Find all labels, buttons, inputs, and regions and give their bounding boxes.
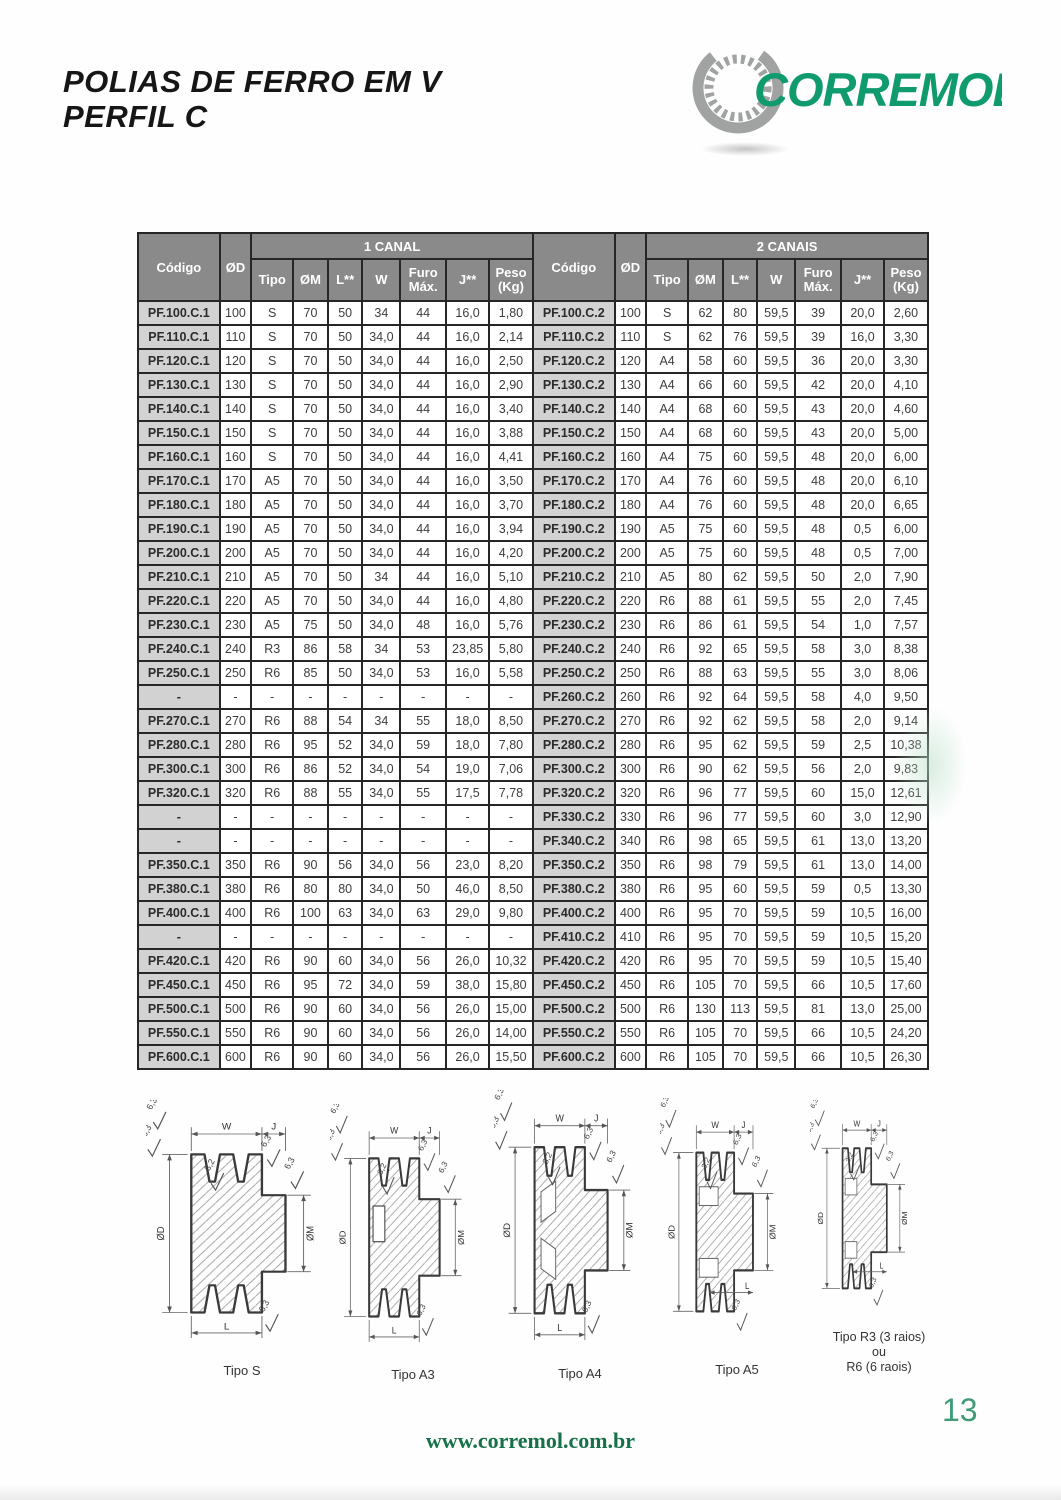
- cell-value: 320: [615, 781, 647, 805]
- catalog-page: POLIAS DE FERRO EM V PERFIL C CORREMOL C…: [0, 0, 1061, 1500]
- cell-value: 330: [615, 805, 647, 829]
- table-row: PF.110.C.1110S705034,04416,02,14PF.110.C…: [138, 325, 928, 349]
- cell-codigo: PF.550.C.2: [533, 1021, 615, 1045]
- cell-value: 80: [688, 565, 723, 589]
- cell-value: 7,06: [489, 757, 533, 781]
- cell-value: 15,20: [884, 925, 928, 949]
- cell-value: 240: [220, 637, 252, 661]
- cell-value: 420: [615, 949, 647, 973]
- cell-value: -: [251, 829, 293, 853]
- cell-codigo: PF.280.C.1: [138, 733, 220, 757]
- cell-value: 44: [400, 397, 446, 421]
- cell-codigo: -: [138, 685, 220, 709]
- cell-value: 90: [688, 757, 723, 781]
- cell-codigo: PF.270.C.1: [138, 709, 220, 733]
- cell-value: A4: [646, 469, 688, 493]
- cell-value: 17,60: [884, 973, 928, 997]
- diagram-tipo-a3: WJØDØML 6,3 6,3 3,2 6,3 6,3 6,3 Tipo A3: [330, 1104, 496, 1382]
- cell-codigo: PF.100.C.2: [533, 301, 615, 325]
- cell-value: 16,0: [446, 493, 489, 517]
- cell-value: 34,0: [362, 1021, 400, 1045]
- cell-value: 110: [615, 325, 647, 349]
- cell-value: 70: [293, 541, 328, 565]
- cell-value: 48: [795, 517, 841, 541]
- cell-value: 190: [615, 517, 647, 541]
- footer-url-link[interactable]: www.corremol.com.br: [0, 1428, 1061, 1454]
- cell-value: 70: [723, 949, 758, 973]
- cell-value: 59,5: [757, 565, 795, 589]
- cell-value: 53: [400, 661, 446, 685]
- cell-value: 350: [220, 853, 252, 877]
- cell-codigo: PF.200.C.1: [138, 541, 220, 565]
- cell-value: 75: [688, 541, 723, 565]
- svg-text:6,3: 6,3: [258, 1133, 273, 1148]
- cell-value: A5: [251, 469, 293, 493]
- diagram-tipo-r: WJØDØML 6,3 6,3 3,2 6,3 6,3 6,3 Tipo R3 …: [810, 1100, 948, 1375]
- diagram-caption-tipo-a3: Tipo A3: [391, 1367, 435, 1382]
- cell-value: 550: [220, 1021, 252, 1045]
- cell-value: 4,60: [884, 397, 928, 421]
- col-header-tipo-1: Tipo: [251, 259, 293, 301]
- cell-value: 3,88: [489, 421, 533, 445]
- cell-value: 26,0: [446, 1021, 489, 1045]
- cell-value: S: [251, 301, 293, 325]
- cell-value: 2,0: [841, 589, 884, 613]
- cell-value: 16,0: [446, 397, 489, 421]
- cell-value: 56: [328, 853, 363, 877]
- cell-value: 200: [615, 541, 647, 565]
- cell-value: 59,5: [757, 541, 795, 565]
- cell-value: 20,0: [841, 445, 884, 469]
- svg-text:6,3: 6,3: [330, 1104, 342, 1115]
- cell-value: 50: [328, 325, 363, 349]
- col-header-peso-1: Peso(Kg): [489, 259, 533, 301]
- cell-value: 34,0: [362, 469, 400, 493]
- cell-value: 60: [723, 421, 758, 445]
- cell-value: 50: [328, 301, 363, 325]
- cell-codigo: PF.120.C.2: [533, 349, 615, 373]
- svg-text:6,3: 6,3: [146, 1123, 154, 1138]
- cell-value: 18,0: [446, 709, 489, 733]
- cell-codigo: PF.420.C.1: [138, 949, 220, 973]
- cell-value: 34,0: [362, 325, 400, 349]
- cell-value: 77: [723, 805, 758, 829]
- cell-codigo: PF.270.C.2: [533, 709, 615, 733]
- cell-value: 44: [400, 517, 446, 541]
- cell-value: 34,0: [362, 613, 400, 637]
- col-header-codigo-2: Código: [533, 233, 615, 301]
- cell-value: 68: [688, 421, 723, 445]
- cell-value: -: [328, 829, 363, 853]
- cell-value: A5: [646, 541, 688, 565]
- cell-value: 4,41: [489, 445, 533, 469]
- cell-value: 95: [688, 877, 723, 901]
- cell-value: -: [446, 805, 489, 829]
- cell-value: 2,0: [841, 709, 884, 733]
- cell-value: 59,5: [757, 661, 795, 685]
- cell-value: 59,5: [757, 1021, 795, 1045]
- page-title-line2: PERFIL C: [63, 99, 442, 134]
- cell-value: A5: [251, 541, 293, 565]
- cell-value: 450: [220, 973, 252, 997]
- cell-value: 76: [723, 325, 758, 349]
- cell-value: 92: [688, 637, 723, 661]
- corremol-logo: CORREMOL: [686, 30, 1002, 152]
- cell-value: 75: [688, 517, 723, 541]
- svg-text:L: L: [224, 1322, 230, 1333]
- cell-codigo: PF.180.C.1: [138, 493, 220, 517]
- cell-value: 14,00: [489, 1021, 533, 1045]
- cell-codigo: PF.230.C.2: [533, 613, 615, 637]
- cell-codigo: PF.330.C.2: [533, 805, 615, 829]
- cell-codigo: PF.250.C.1: [138, 661, 220, 685]
- cell-value: 56: [400, 949, 446, 973]
- cell-value: R6: [251, 853, 293, 877]
- cell-codigo: PF.550.C.1: [138, 1021, 220, 1045]
- cell-value: 410: [615, 925, 647, 949]
- cell-value: 59,5: [757, 877, 795, 901]
- cell-value: 60: [328, 1021, 363, 1045]
- cell-value: 70: [293, 421, 328, 445]
- cell-value: 7,78: [489, 781, 533, 805]
- cell-value: 34: [362, 709, 400, 733]
- cell-value: 26,0: [446, 949, 489, 973]
- cell-value: R6: [646, 613, 688, 637]
- cell-value: 320: [220, 781, 252, 805]
- cell-value: 200: [220, 541, 252, 565]
- cell-value: 53: [400, 637, 446, 661]
- cell-value: A4: [646, 397, 688, 421]
- cell-value: 61: [723, 589, 758, 613]
- table-row: PF.600.C.1600R6906034,05626,015,50PF.600…: [138, 1045, 928, 1069]
- cell-value: R6: [646, 781, 688, 805]
- table-row: PF.130.C.1130S705034,04416,02,90PF.130.C…: [138, 373, 928, 397]
- cell-value: 36: [795, 349, 841, 373]
- table-row: PF.230.C.1230A5755034,04816,05,76PF.230.…: [138, 613, 928, 637]
- cell-value: 86: [293, 757, 328, 781]
- cell-value: 59,5: [757, 469, 795, 493]
- cell-value: 34,0: [362, 445, 400, 469]
- svg-text:J: J: [427, 1125, 431, 1135]
- cell-value: 70: [293, 445, 328, 469]
- cell-codigo: PF.280.C.2: [533, 733, 615, 757]
- cell-value: R6: [646, 877, 688, 901]
- cell-value: 20,0: [841, 493, 884, 517]
- cell-codigo: -: [138, 925, 220, 949]
- svg-text:6,3: 6,3: [810, 1121, 816, 1134]
- cell-value: 44: [400, 565, 446, 589]
- cell-value: 39: [795, 325, 841, 349]
- cell-codigo: PF.240.C.2: [533, 637, 615, 661]
- cell-value: 56: [400, 997, 446, 1021]
- svg-text:ØM: ØM: [305, 1226, 316, 1241]
- cell-value: 100: [220, 301, 252, 325]
- cell-value: 59: [795, 733, 841, 757]
- cell-value: 59: [795, 901, 841, 925]
- cell-value: 59,5: [757, 349, 795, 373]
- col-header-l-2: L**: [723, 259, 758, 301]
- cell-value: 50: [328, 421, 363, 445]
- col-header-codigo-1: Código: [138, 233, 220, 301]
- cell-codigo: PF.240.C.1: [138, 637, 220, 661]
- cell-value: 76: [688, 469, 723, 493]
- cell-value: 6,00: [884, 445, 928, 469]
- cell-value: 95: [688, 925, 723, 949]
- cell-value: 86: [293, 637, 328, 661]
- cell-codigo: PF.110.C.2: [533, 325, 615, 349]
- table-row: PF.450.C.1450R6957234,05938,015,80PF.450…: [138, 973, 928, 997]
- group-header-1-canal: 1 CANAL: [251, 233, 533, 259]
- cell-value: 62: [723, 733, 758, 757]
- cell-value: 52: [328, 757, 363, 781]
- cell-value: 61: [723, 613, 758, 637]
- svg-text:6,3: 6,3: [810, 1100, 820, 1110]
- cell-value: S: [646, 325, 688, 349]
- cell-codigo: PF.210.C.1: [138, 565, 220, 589]
- cell-value: 70: [293, 517, 328, 541]
- cell-value: 50: [328, 517, 363, 541]
- cell-value: 70: [293, 301, 328, 325]
- svg-text:6,3: 6,3: [750, 1153, 762, 1169]
- cell-value: 34,0: [362, 757, 400, 781]
- cell-codigo: PF.320.C.1: [138, 781, 220, 805]
- cell-value: 130: [688, 997, 723, 1021]
- cell-value: 44: [400, 325, 446, 349]
- cell-value: 38,0: [446, 973, 489, 997]
- table-row: PF.170.C.1170A5705034,04416,03,50PF.170.…: [138, 469, 928, 493]
- cell-value: 90: [293, 853, 328, 877]
- col-header-w-2: W: [757, 259, 795, 301]
- table-row: PF.380.C.1380R6808034,05046,08,50PF.380.…: [138, 877, 928, 901]
- cell-value: 100: [615, 301, 647, 325]
- cell-value: 230: [615, 613, 647, 637]
- cell-value: R6: [251, 949, 293, 973]
- cell-value: R6: [251, 661, 293, 685]
- cell-value: R6: [646, 709, 688, 733]
- cell-value: 48: [795, 541, 841, 565]
- diagram-caption-tipo-r: Tipo R3 (3 raios) ou R6 (6 raois): [833, 1330, 926, 1375]
- table-row: PF.550.C.1550R6906034,05626,014,00PF.550…: [138, 1021, 928, 1045]
- cell-codigo: PF.500.C.2: [533, 997, 615, 1021]
- cell-value: 54: [400, 757, 446, 781]
- cell-value: -: [220, 805, 252, 829]
- cell-value: 3,50: [489, 469, 533, 493]
- table-row: PF.120.C.1120S705034,04416,02,50PF.120.C…: [138, 349, 928, 373]
- logo-text: CORREMOL: [754, 63, 1002, 116]
- cell-value: 50: [328, 613, 363, 637]
- svg-text:J: J: [594, 1113, 598, 1123]
- svg-text:6,3: 6,3: [494, 1090, 506, 1102]
- cell-value: 130: [615, 373, 647, 397]
- pulley-drawing-tipo-r: WJØDØML 6,3 6,3 3,2 6,3 6,3 6,3: [810, 1100, 948, 1326]
- cell-value: 10,5: [841, 1045, 884, 1069]
- cell-value: 34,0: [362, 661, 400, 685]
- cell-value: 81: [795, 997, 841, 1021]
- table-row: PF.350.C.1350R6905634,05623,08,20PF.350.…: [138, 853, 928, 877]
- cell-codigo: PF.600.C.2: [533, 1045, 615, 1069]
- cell-value: 56: [400, 1045, 446, 1069]
- cell-value: 6,00: [884, 517, 928, 541]
- cell-value: 76: [688, 493, 723, 517]
- cell-value: 66: [688, 373, 723, 397]
- cell-value: 140: [220, 397, 252, 421]
- cell-value: 96: [688, 781, 723, 805]
- cell-value: 270: [615, 709, 647, 733]
- cell-value: 55: [400, 709, 446, 733]
- cell-value: 2,14: [489, 325, 533, 349]
- table-body: PF.100.C.1100S7050344416,01,80PF.100.C.2…: [138, 301, 928, 1069]
- cell-value: 50: [328, 349, 363, 373]
- svg-text:6,3: 6,3: [437, 1159, 450, 1174]
- cell-value: A5: [251, 565, 293, 589]
- cell-value: 44: [400, 349, 446, 373]
- cell-value: 95: [293, 973, 328, 997]
- cell-value: 20,0: [841, 397, 884, 421]
- svg-text:ØD: ØD: [667, 1225, 676, 1239]
- cell-value: 48: [795, 493, 841, 517]
- cell-value: 50: [400, 877, 446, 901]
- cell-value: 23,85: [446, 637, 489, 661]
- cell-value: 600: [220, 1045, 252, 1069]
- table-row: PF.400.C.1400R61006334,06329,09,80PF.400…: [138, 901, 928, 925]
- cell-value: 85: [293, 661, 328, 685]
- cell-value: 65: [723, 829, 758, 853]
- cell-value: 3,94: [489, 517, 533, 541]
- cell-value: 300: [220, 757, 252, 781]
- cell-value: 75: [293, 613, 328, 637]
- cell-value: 3,30: [884, 349, 928, 373]
- cell-codigo: PF.400.C.2: [533, 901, 615, 925]
- cell-value: 150: [615, 421, 647, 445]
- cell-value: R6: [646, 757, 688, 781]
- cell-value: 62: [723, 757, 758, 781]
- cell-value: 61: [795, 829, 841, 853]
- table-row: PF.210.C.1210A57050344416,05,10PF.210.C.…: [138, 565, 928, 589]
- pulley-drawing-tipo-s: WJØDØML 6,3 6,3 3,2 6,3 6,3 6,3: [146, 1100, 338, 1355]
- svg-text:W: W: [711, 1119, 719, 1130]
- cell-value: -: [293, 829, 328, 853]
- cell-value: 160: [220, 445, 252, 469]
- cell-value: A4: [646, 349, 688, 373]
- pulley-drawing-tipo-a5: WJØDØML 6,3 6,3 3,2 6,3 6,3 6,3: [660, 1098, 814, 1354]
- table-row: PF.160.C.1160S705034,04416,04,41PF.160.C…: [138, 445, 928, 469]
- page-title: POLIAS DE FERRO EM V PERFIL C: [63, 64, 442, 134]
- cell-value: 16,0: [446, 469, 489, 493]
- cell-value: 170: [220, 469, 252, 493]
- cell-value: 59: [400, 973, 446, 997]
- cell-value: 77: [723, 781, 758, 805]
- cell-value: 88: [688, 661, 723, 685]
- col-header-l-1: L**: [328, 259, 363, 301]
- cell-value: S: [251, 373, 293, 397]
- cell-codigo: PF.100.C.1: [138, 301, 220, 325]
- cell-value: A5: [251, 589, 293, 613]
- cell-value: 44: [400, 541, 446, 565]
- cell-value: S: [251, 349, 293, 373]
- table-row: ---------PF.410.C.2410R6957059,55910,515…: [138, 925, 928, 949]
- cell-value: 72: [328, 973, 363, 997]
- cell-value: 15,0: [841, 781, 884, 805]
- cell-value: -: [446, 925, 489, 949]
- cell-value: 60: [328, 949, 363, 973]
- col-header-w-1: W: [362, 259, 400, 301]
- cell-value: S: [251, 421, 293, 445]
- cell-value: 59,5: [757, 613, 795, 637]
- cell-value: 44: [400, 589, 446, 613]
- cell-value: 66: [795, 973, 841, 997]
- cell-value: -: [362, 829, 400, 853]
- cell-value: 5,10: [489, 565, 533, 589]
- cell-value: 250: [220, 661, 252, 685]
- cell-value: 55: [795, 661, 841, 685]
- cell-value: 8,20: [489, 853, 533, 877]
- svg-text:ØD: ØD: [338, 1230, 348, 1245]
- cell-value: 44: [400, 469, 446, 493]
- svg-text:ØD: ØD: [817, 1212, 825, 1225]
- cell-value: 60: [723, 349, 758, 373]
- cell-value: 50: [795, 565, 841, 589]
- cell-value: 54: [328, 709, 363, 733]
- cell-value: 59,5: [757, 925, 795, 949]
- cell-value: R6: [251, 901, 293, 925]
- svg-text:ØM: ØM: [456, 1230, 466, 1245]
- cell-value: 60: [723, 445, 758, 469]
- cell-codigo: PF.200.C.2: [533, 541, 615, 565]
- cell-value: 62: [723, 565, 758, 589]
- cell-value: 42: [795, 373, 841, 397]
- cell-value: 10,5: [841, 925, 884, 949]
- svg-text:6,3: 6,3: [282, 1156, 297, 1171]
- cell-value: -: [328, 925, 363, 949]
- cell-value: 59: [795, 949, 841, 973]
- table-row: PF.270.C.1270R68854345518,08,50PF.270.C.…: [138, 709, 928, 733]
- cell-value: 92: [688, 685, 723, 709]
- cell-value: R6: [251, 781, 293, 805]
- cell-codigo: PF.500.C.1: [138, 997, 220, 1021]
- cell-value: 34,0: [362, 733, 400, 757]
- cell-value: 190: [220, 517, 252, 541]
- svg-text:L: L: [880, 1261, 885, 1271]
- cell-value: 400: [615, 901, 647, 925]
- cell-value: 34,0: [362, 853, 400, 877]
- cell-value: 70: [293, 373, 328, 397]
- cell-value: 60: [723, 877, 758, 901]
- cell-value: 50: [328, 589, 363, 613]
- cell-value: 50: [328, 445, 363, 469]
- cell-value: 34,0: [362, 493, 400, 517]
- cell-value: R6: [646, 589, 688, 613]
- table-row: PF.140.C.1140S705034,04416,03,40PF.140.C…: [138, 397, 928, 421]
- cell-value: 2,0: [841, 565, 884, 589]
- cell-value: 16,0: [446, 541, 489, 565]
- cell-value: 180: [220, 493, 252, 517]
- cell-value: 34,0: [362, 373, 400, 397]
- cell-value: 70: [723, 1021, 758, 1045]
- cell-value: 120: [220, 349, 252, 373]
- cell-value: 63: [723, 661, 758, 685]
- cell-value: 59,5: [757, 997, 795, 1021]
- cell-codigo: PF.410.C.2: [533, 925, 615, 949]
- svg-text:W: W: [853, 1119, 860, 1129]
- cell-codigo: PF.150.C.2: [533, 421, 615, 445]
- cell-value: 44: [400, 493, 446, 517]
- cell-value: 19,0: [446, 757, 489, 781]
- cell-value: R6: [646, 733, 688, 757]
- cell-codigo: PF.190.C.2: [533, 517, 615, 541]
- cell-value: 4,80: [489, 589, 533, 613]
- cell-codigo: PF.130.C.2: [533, 373, 615, 397]
- table-row: PF.150.C.1150S705034,04416,03,88PF.150.C…: [138, 421, 928, 445]
